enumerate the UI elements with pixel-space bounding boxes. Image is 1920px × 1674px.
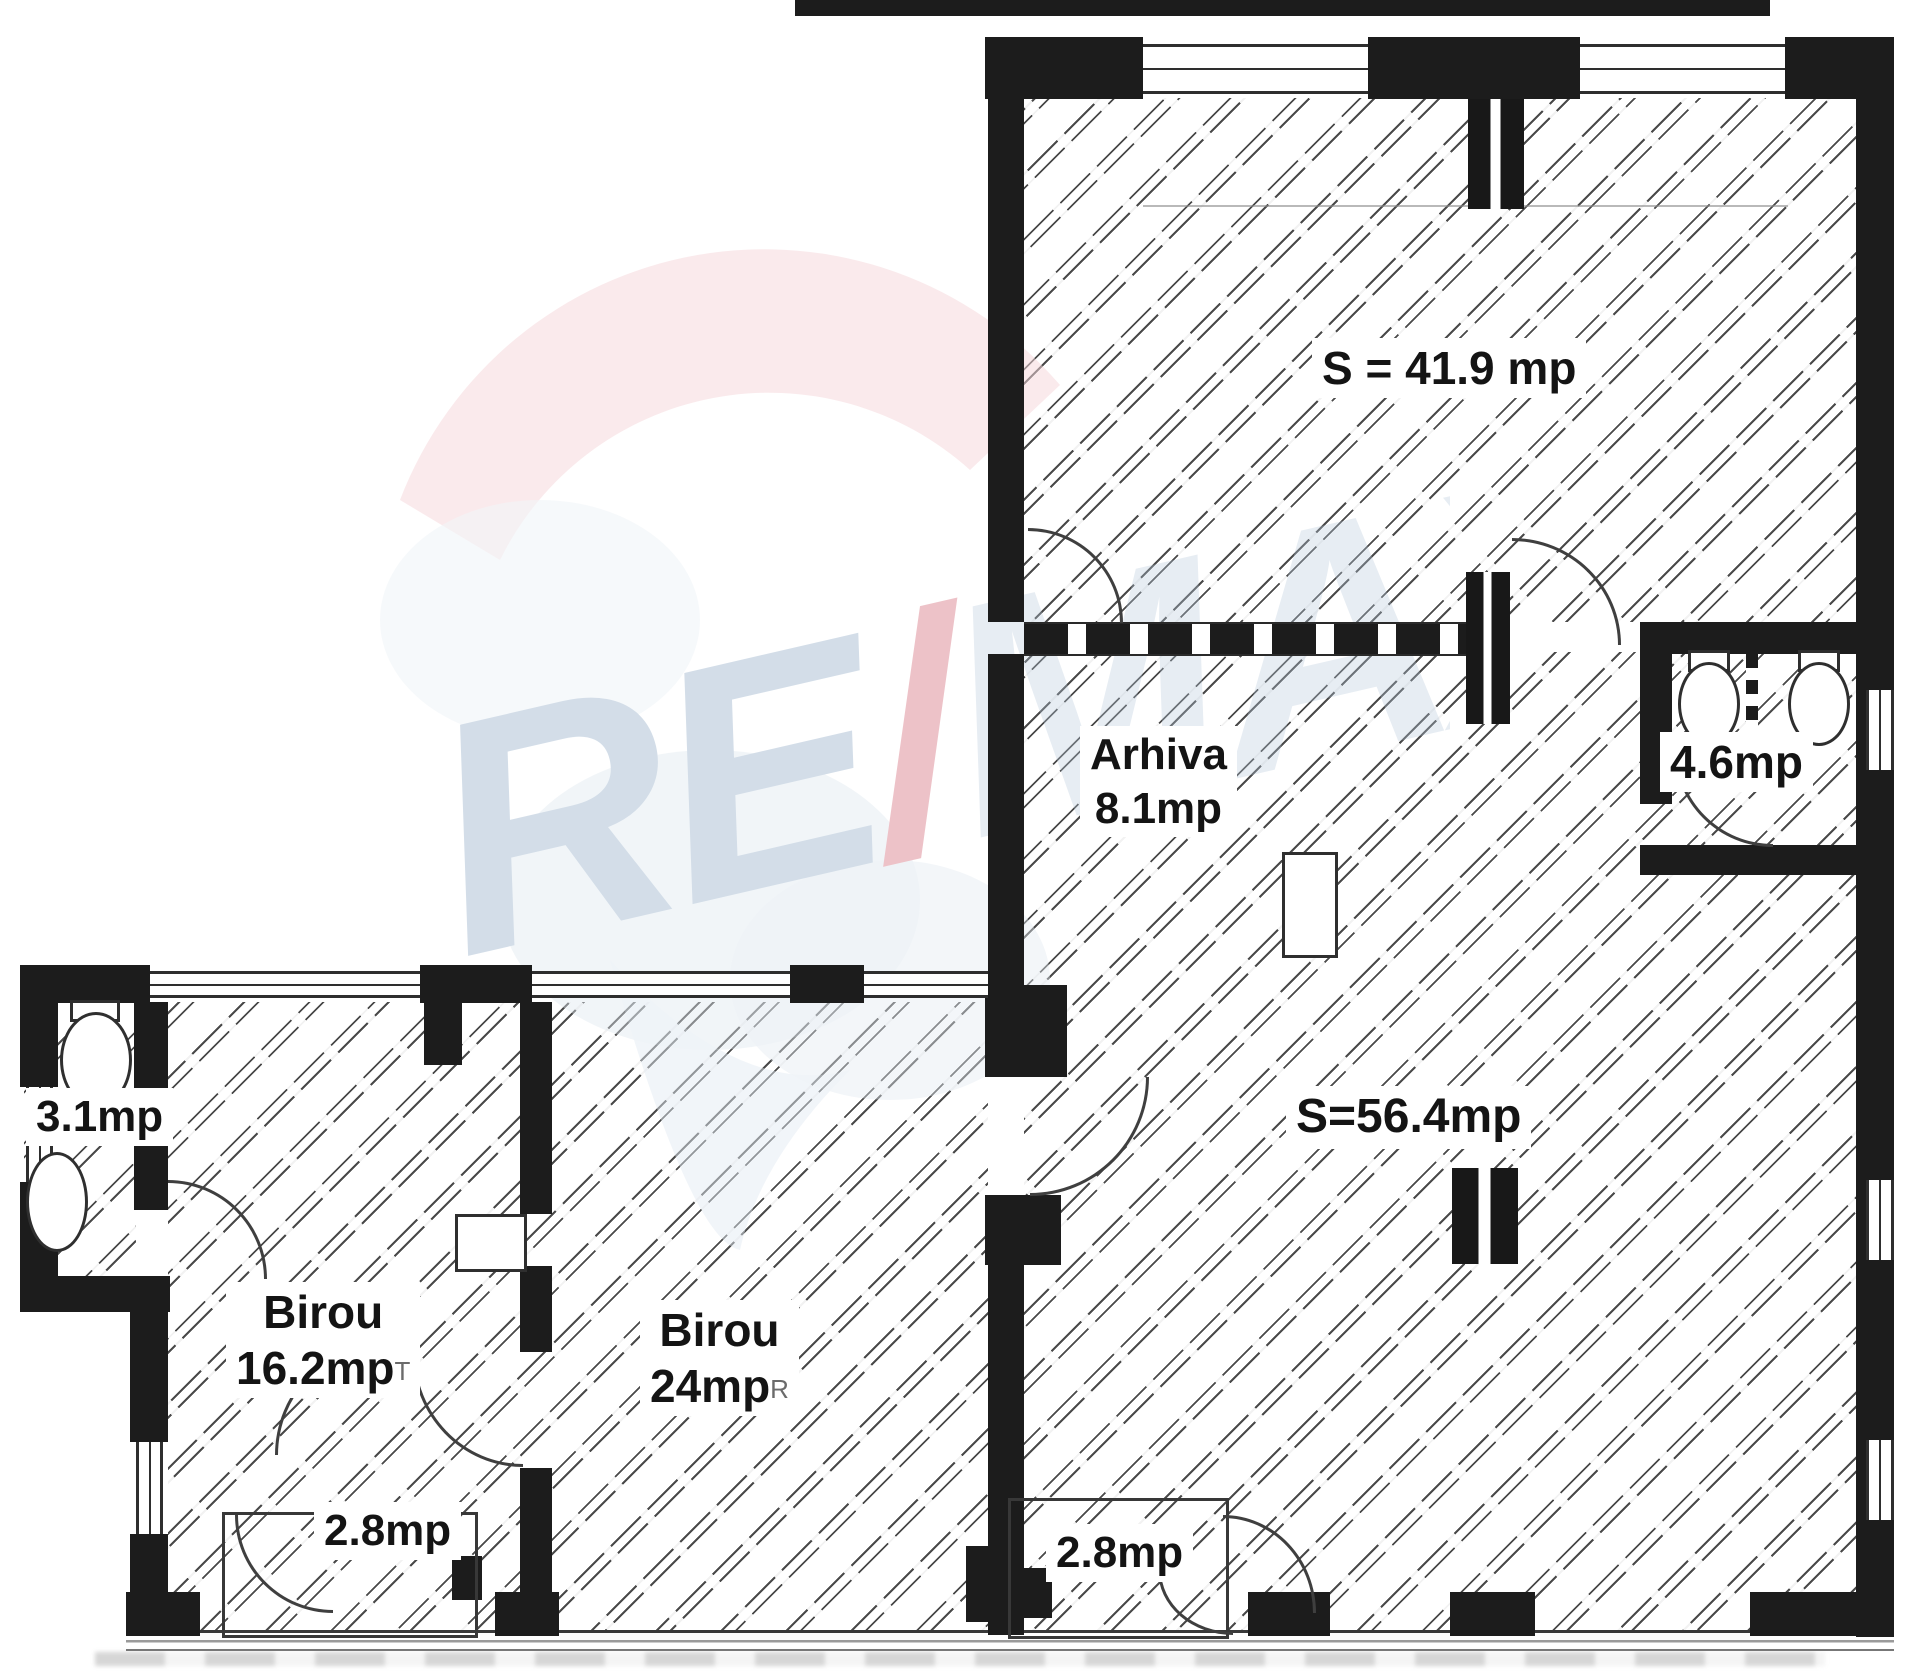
window-right-1 <box>1866 690 1894 770</box>
arhiva-area: 8.1mp <box>1090 782 1227 836</box>
birou-large-name: Birou <box>650 1302 789 1358</box>
label-wc46: 4.6mp <box>1660 732 1813 792</box>
vestibule-left-area: 2.8mp <box>324 1506 451 1555</box>
window-recess-line <box>1143 205 1788 207</box>
label-hall-top: S = 41.9 mp <box>1312 338 1586 398</box>
wall-right-facade <box>1856 37 1894 1637</box>
birou-large-scan-mark: R <box>770 1374 789 1404</box>
lw-top-pillar-2 <box>790 965 864 1003</box>
junction-block-upper <box>985 985 1067 1077</box>
label-birou-large: Birou 24mpR <box>640 1300 799 1416</box>
pillar-vestibule-right-outer <box>966 1546 1008 1622</box>
vestibule-right-area: 2.8mp <box>1056 1528 1183 1577</box>
birou-small-area: 16.2mp <box>236 1342 395 1394</box>
scan-band-bottom <box>95 1652 1825 1666</box>
birou-divider-lower <box>520 1468 552 1634</box>
junction-block-lower <box>985 1195 1061 1265</box>
lw-window-2 <box>532 971 790 998</box>
birou-small-area-line: 16.2mpT <box>236 1340 410 1396</box>
bottom-corner-right <box>1838 1592 1894 1636</box>
wc31-left-wall-upper <box>20 965 58 1087</box>
label-vestibule-left: 2.8mp <box>314 1502 461 1560</box>
floor-plan: RE/MAX <box>0 0 1920 1674</box>
lw-top-pillar-1-stub <box>424 1003 462 1065</box>
scan-band-top <box>795 0 1770 16</box>
lw-left-edge-upper <box>130 1312 168 1442</box>
window-right-3 <box>1866 1440 1894 1520</box>
wall-spine-middle <box>988 654 1024 1004</box>
watermark-re: RE <box>395 562 929 1026</box>
label-arhiva: Arhiva 8.1mp <box>1080 726 1237 837</box>
balloon-top-cap <box>400 249 1060 560</box>
lw-top-pillar-1 <box>420 965 532 1003</box>
wc31-area: 3.1mp <box>36 1092 163 1141</box>
wc31-bottom-wall <box>20 1276 170 1312</box>
birou-large-area: 24mp <box>650 1360 770 1412</box>
wc46-area: 4.6mp <box>1670 736 1803 788</box>
bottom-pillar-5 <box>1750 1592 1838 1636</box>
bottom-pillar-4 <box>1450 1592 1535 1636</box>
lw-left-edge-window <box>136 1442 163 1534</box>
hall-top-area: S = 41.9 mp <box>1322 342 1576 394</box>
lw-window-1 <box>150 971 420 998</box>
column-central <box>1466 572 1510 724</box>
label-birou-small: Birou 16.2mpT <box>226 1282 420 1398</box>
wall-spine-upper <box>988 37 1024 622</box>
label-vestibule-right: 2.8mp <box>1046 1524 1193 1582</box>
hall-main-area: S=56.4mp <box>1296 1090 1521 1143</box>
wall-top-pillar <box>1368 37 1580 99</box>
balloon-lobe-1 <box>380 500 700 740</box>
label-wc31: 3.1mp <box>26 1088 173 1146</box>
birou-small-scan-mark: T <box>395 1356 411 1386</box>
window-top-1 <box>1143 44 1368 94</box>
label-hall-main: S=56.4mp <box>1286 1086 1531 1149</box>
wc31-sink <box>26 1152 88 1252</box>
wall-wc46-bottom <box>1640 845 1856 875</box>
pillar-hall-main <box>1452 1168 1518 1264</box>
lw-left-edge-lower <box>130 1534 168 1634</box>
birou-large-area-line: 24mpR <box>650 1358 789 1414</box>
window-top-2 <box>1580 44 1785 94</box>
lw-window-3 <box>864 971 988 998</box>
birou-divider-middle <box>520 1266 552 1352</box>
birou-divider-shelf <box>455 1214 527 1272</box>
window-right-2 <box>1866 1180 1894 1260</box>
birou-divider-upper <box>520 1002 552 1214</box>
arhiva-name: Arhiva <box>1090 728 1227 782</box>
birou-small-name: Birou <box>236 1284 410 1340</box>
wall-divider-dashed <box>1024 622 1468 656</box>
arhiva-desk <box>1282 852 1338 958</box>
column-top-stub <box>1468 99 1524 209</box>
